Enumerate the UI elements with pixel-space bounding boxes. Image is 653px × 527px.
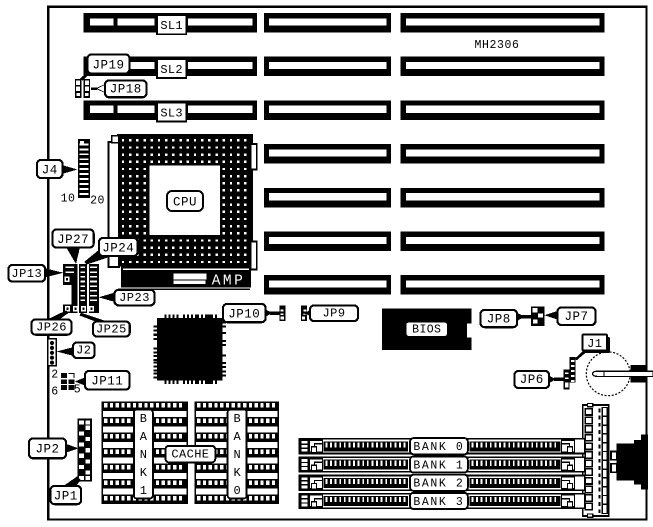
svg-text:J4: J4	[42, 163, 58, 177]
svg-text:JP25: JP25	[96, 322, 127, 336]
svg-text:BANK 1: BANK 1	[413, 459, 464, 472]
svg-text:J1: J1	[587, 337, 602, 351]
svg-text:6: 6	[51, 386, 58, 399]
svg-text:JP8: JP8	[487, 312, 511, 326]
svg-text:JP13: JP13	[11, 267, 42, 281]
svg-text:JP10: JP10	[228, 307, 260, 321]
svg-text:B: B	[140, 412, 147, 426]
svg-text:JP23: JP23	[119, 291, 150, 305]
svg-text:K: K	[140, 466, 148, 480]
svg-text:JP11: JP11	[91, 375, 123, 389]
svg-text:JP7: JP7	[564, 310, 588, 324]
svg-text:CPU: CPU	[173, 195, 197, 209]
svg-text:AMP: AMP	[212, 274, 246, 290]
svg-text:20: 20	[90, 195, 105, 208]
svg-text:10: 10	[61, 193, 76, 206]
svg-text:JP2: JP2	[35, 443, 59, 457]
svg-text:1: 1	[140, 484, 147, 498]
svg-text:MH2306: MH2306	[474, 39, 519, 52]
svg-text:JP27: JP27	[57, 233, 89, 247]
svg-text:JP19: JP19	[92, 58, 124, 72]
svg-text:0: 0	[233, 484, 240, 498]
svg-text:JP18: JP18	[110, 82, 142, 96]
svg-text:2: 2	[51, 369, 58, 382]
svg-text:5: 5	[74, 384, 81, 397]
svg-text:B: B	[233, 412, 240, 426]
svg-text:SL2: SL2	[160, 63, 183, 77]
svg-text:JP26: JP26	[36, 320, 67, 334]
svg-text:J2: J2	[76, 344, 91, 358]
svg-text:BANK 2: BANK 2	[413, 478, 464, 491]
svg-text:SL1: SL1	[160, 19, 183, 33]
svg-text:N: N	[140, 448, 147, 462]
svg-text:N: N	[233, 448, 240, 462]
svg-text:JP1: JP1	[54, 489, 78, 503]
svg-text:A: A	[233, 430, 241, 444]
svg-text:CACHE: CACHE	[171, 448, 209, 462]
svg-text:JP24: JP24	[102, 241, 134, 255]
svg-text:A: A	[140, 430, 148, 444]
svg-text:BANK 0: BANK 0	[413, 441, 464, 454]
svg-text:JP6: JP6	[520, 373, 544, 387]
svg-text:JP9: JP9	[322, 307, 345, 321]
svg-text:BANK 3: BANK 3	[413, 496, 464, 509]
svg-text:SL3: SL3	[160, 107, 183, 121]
svg-text:K: K	[233, 466, 241, 480]
svg-text:BIOS: BIOS	[412, 323, 441, 336]
